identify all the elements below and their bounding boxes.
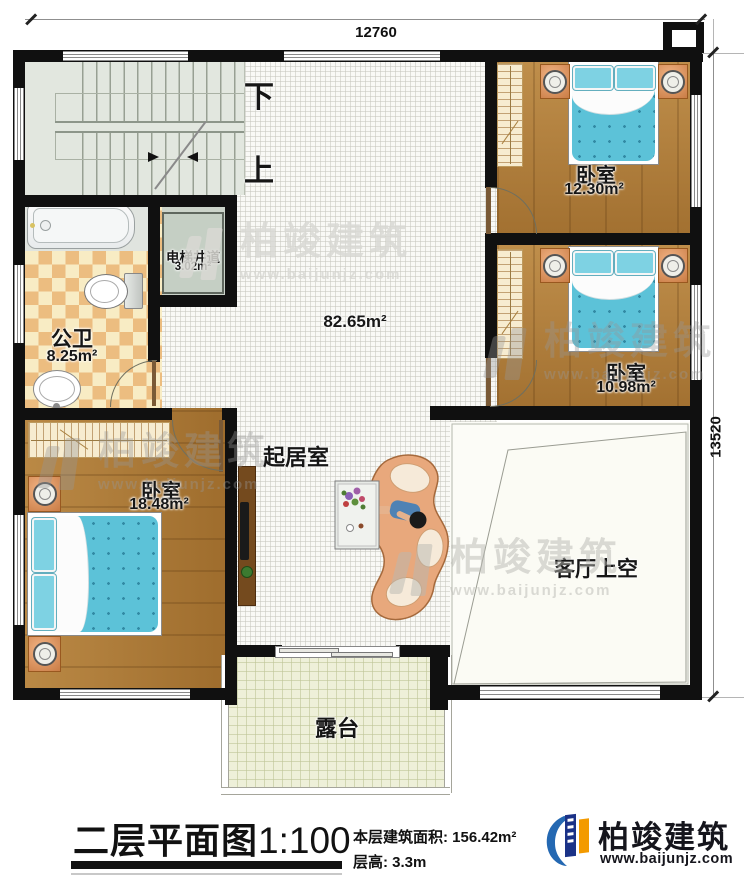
bed-sheet-fold — [54, 516, 89, 632]
staircase — [25, 62, 245, 195]
window — [63, 51, 188, 61]
pillow — [573, 251, 613, 275]
bed-bedroom-mid — [568, 246, 659, 352]
sliding-door-panel — [279, 648, 339, 653]
wall — [485, 233, 696, 245]
window — [691, 285, 701, 380]
room-label-void: 客厅上空 — [554, 553, 638, 583]
nightstand — [658, 64, 688, 99]
floor-height-row: 层高: 3.3m — [353, 851, 426, 872]
title-underline-light — [71, 873, 342, 875]
plan-scale: 1:100 — [258, 820, 351, 861]
toilet — [84, 271, 142, 311]
dimension-right-value: 13520 — [708, 416, 725, 458]
toilet-bowl — [84, 274, 128, 309]
bed-bedroom-top — [568, 61, 659, 165]
bathtub-faucet-icon — [30, 223, 35, 228]
wall — [430, 406, 696, 420]
floor-height-value: 3.3m — [392, 854, 426, 871]
stair-arrow-right-icon — [148, 152, 159, 162]
wall — [148, 295, 237, 307]
window — [14, 88, 24, 160]
window — [14, 265, 24, 343]
floor-plan-page: 下 上 电梯井道 3.02m² 公卫 8.25m² 卧室 12.30m² 卧室 … — [0, 0, 750, 886]
room-area-bedroom-mid: 10.98m² — [596, 379, 656, 397]
wall — [485, 245, 497, 358]
lamp-icon — [33, 482, 57, 506]
nightstand — [540, 64, 570, 99]
lamp-icon — [543, 70, 567, 94]
toilet-bowl-inner — [90, 280, 119, 303]
cup-icon — [347, 525, 354, 532]
dimension-top-value: 12760 — [355, 24, 397, 41]
pillow — [615, 66, 655, 90]
tv — [240, 502, 249, 560]
pillow — [573, 66, 613, 90]
wardrobe-bedroom-mid — [497, 249, 523, 359]
wardrobe-rod — [510, 66, 511, 164]
dimension-line-top — [25, 19, 705, 20]
terrace-parapet-bottom — [221, 787, 450, 795]
nightstand — [28, 476, 61, 512]
bathtub — [27, 202, 135, 249]
stair-down-label: 下 — [244, 72, 274, 116]
coffee-table — [334, 480, 380, 550]
room-area-bedroom-top: 12.30m² — [564, 181, 624, 199]
pillow — [32, 518, 56, 572]
nightstand — [658, 248, 688, 283]
window — [284, 51, 440, 61]
pillow — [615, 251, 655, 275]
sink — [33, 370, 81, 408]
wardrobe-rod — [31, 440, 167, 441]
lamp-icon — [543, 254, 567, 278]
nightstand — [28, 636, 61, 672]
person-head — [410, 512, 427, 529]
stair-up-label: 上 — [244, 146, 274, 190]
window — [691, 95, 701, 207]
stair-walkline-top — [55, 93, 244, 94]
wall — [13, 408, 172, 420]
wall — [225, 195, 237, 307]
wall — [430, 645, 448, 710]
wardrobe-bedroom-left — [28, 422, 170, 458]
window-railing — [480, 686, 660, 699]
room-label-living: 起居室 — [263, 440, 329, 472]
stair-arrow-left-icon — [187, 152, 198, 162]
room-area-living: 82.65m² — [323, 312, 386, 332]
sliding-door-panel — [331, 652, 393, 657]
brand-website: www.baijunjz.com — [600, 851, 733, 867]
wardrobe-rod — [510, 252, 511, 356]
room-area-elevator: 3.02m² — [175, 261, 211, 273]
plant-icon — [241, 566, 253, 578]
brand-logo-icon — [542, 808, 594, 870]
lamp-icon — [661, 254, 685, 278]
floor-area-label: 本层建筑面积: — [353, 829, 452, 846]
dimension-line-right — [713, 53, 714, 697]
pillow — [32, 574, 56, 630]
wall — [225, 408, 237, 705]
window — [14, 515, 24, 625]
chimney-box — [663, 22, 704, 54]
title-block: 二层平面图1:100 本层建筑面积: 156.42m² 层高: 3.3m 柏竣建… — [0, 800, 750, 886]
floor-height-label: 层高: — [353, 854, 392, 871]
window — [60, 689, 190, 699]
floor-area-row: 本层建筑面积: 156.42m² — [353, 826, 516, 847]
wall — [148, 195, 160, 362]
floor-area-value: 156.42m² — [452, 829, 516, 846]
wardrobe-bedroom-top — [497, 63, 523, 167]
plan-title-text: 二层平面图 — [73, 820, 258, 861]
lamp-icon — [661, 70, 685, 94]
wall — [25, 195, 237, 207]
stair-rail — [55, 121, 244, 133]
wall — [485, 50, 497, 188]
room-area-bedroom-left: 18.48m² — [129, 496, 189, 514]
sink-basin — [39, 376, 75, 402]
room-area-bathroom: 8.25m² — [47, 348, 98, 366]
nightstand — [540, 248, 570, 283]
lamp-icon — [33, 642, 57, 666]
sliding-door — [275, 646, 400, 658]
bed-bedroom-left — [27, 512, 162, 636]
bathtub-drain-icon — [40, 220, 51, 231]
cup-icon — [359, 524, 364, 529]
plan-title: 二层平面图1:100 — [73, 812, 351, 864]
chimney-box-inner — [672, 30, 696, 47]
room-label-terrace: 露台 — [315, 711, 359, 743]
title-underline — [71, 861, 342, 869]
